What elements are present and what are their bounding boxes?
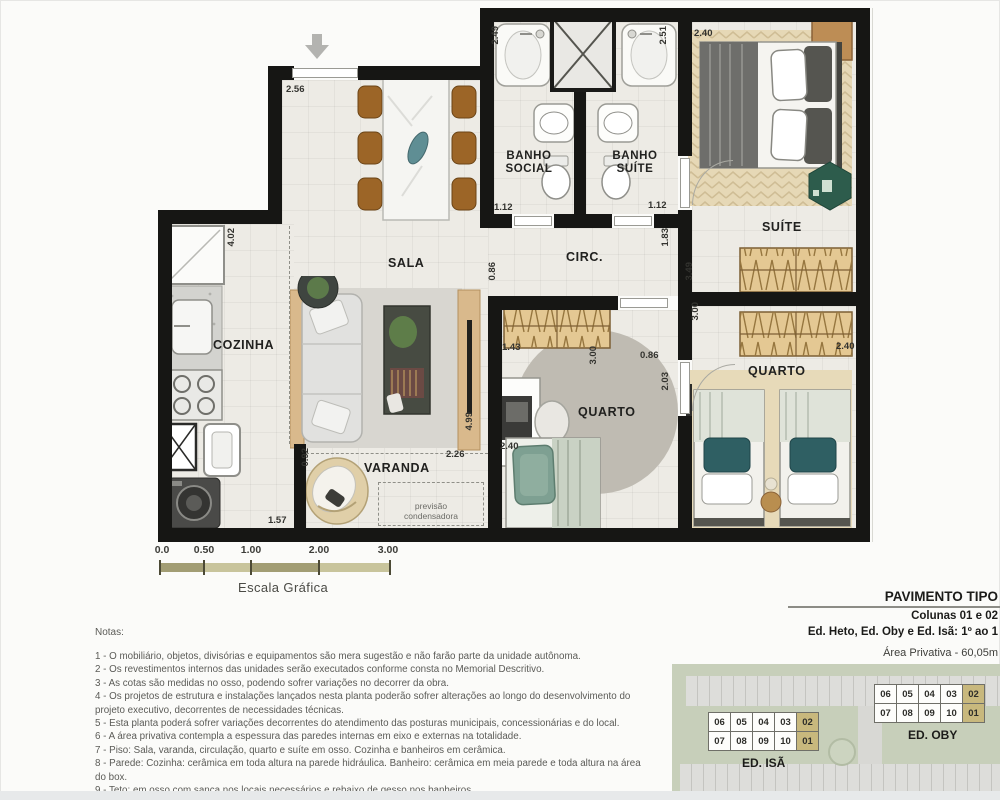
elevator-shaft: [550, 16, 616, 92]
wall: [678, 416, 692, 542]
shaft-x-icon: [554, 20, 612, 88]
unit-cell: 08: [896, 703, 919, 723]
building-label-ed-oby: ED. OBY: [908, 728, 957, 742]
wall: [268, 66, 282, 224]
unit-cell: 10: [774, 731, 797, 751]
unit-cell: 03: [940, 684, 963, 704]
suite-furniture-illustration: [684, 20, 856, 296]
scale-bar-tick: [250, 560, 252, 575]
scale-bar-segment: [319, 563, 390, 572]
note-item: 1 - O mobiliário, objetos, divisórias e …: [95, 650, 651, 663]
unit-row: 07 08 09 10 01: [874, 703, 984, 722]
wall: [488, 296, 618, 310]
dimension-label: 4.99: [464, 412, 475, 431]
wall: [554, 214, 612, 228]
scale-tick-label: 0.0: [155, 544, 170, 556]
label-banho-social: BANHO SOCIAL: [496, 150, 562, 176]
dimension-label: 3.49: [684, 262, 695, 281]
notes-title: Notas:: [95, 627, 651, 638]
page-bottom-strip: [0, 791, 1000, 800]
dimension-label: 2.03: [660, 372, 671, 391]
label-sala: SALA: [388, 256, 424, 270]
wall: [158, 528, 870, 542]
wall: [480, 8, 870, 22]
dimension-label: 2.26: [446, 449, 465, 460]
condenser-label: previsão condensadora: [390, 501, 472, 521]
unit-row: 06 05 04 03 02: [874, 684, 984, 703]
banho-suite-door: [614, 216, 652, 226]
unit-cell: 10: [940, 703, 963, 723]
wall: [480, 214, 512, 228]
dimension-label: 1.12: [648, 200, 667, 211]
wall: [678, 292, 870, 306]
wall: [358, 66, 490, 80]
wall: [574, 92, 586, 214]
unit-row: 07 08 09 10 01: [708, 731, 818, 750]
guide-line: [872, 8, 873, 542]
unit-cell-highlighted: 02: [962, 684, 985, 704]
scale-bar-tick: [203, 560, 205, 575]
roundabout: [828, 738, 856, 766]
scale-tick-label: 3.00: [378, 544, 398, 556]
dimension-label: 0.86: [640, 350, 659, 361]
scale-bar-tick: [318, 560, 320, 575]
label-quarto-meio: QUARTO: [578, 405, 636, 419]
dining-set-illustration: [352, 76, 482, 222]
unit-row: 06 05 04 03 02: [708, 712, 818, 731]
unit-cell: 07: [708, 731, 731, 751]
panel-area-line: Área Privativa - 60,05m: [883, 647, 998, 659]
building-ed-oby: 06 05 04 03 02 07 08 09 10 01: [874, 684, 984, 722]
scale-bar-tick: [159, 560, 161, 575]
unit-cell: 05: [896, 684, 919, 704]
armchair-illustration: [304, 456, 370, 526]
unit-cell: 09: [752, 731, 775, 751]
dimension-label: 1.83: [660, 228, 671, 247]
wall: [158, 210, 172, 542]
wall: [488, 296, 502, 542]
note-item: 4 - Os projetos de estrutura e instalaçõ…: [95, 690, 651, 717]
unit-cell: 04: [752, 712, 775, 732]
kitchen-appliances-illustration: [160, 222, 246, 532]
scale-bar-segment: [251, 563, 319, 572]
note-item: 5 - Esta planta poderá sofrer variações …: [95, 717, 651, 730]
scale-tick-label: 1.00: [241, 544, 261, 556]
dimension-label: 3.00: [588, 346, 599, 365]
dimension-label: 2.40: [836, 341, 855, 352]
quarto-fundo-door: [680, 362, 690, 414]
entry-door: [292, 68, 358, 78]
unit-cell: 07: [874, 703, 897, 723]
panel-subtitle: Colunas 01 e 02: [911, 610, 998, 622]
scale-tick-label: 2.00: [309, 544, 329, 556]
banho-social-door: [514, 216, 552, 226]
scale-bar-segment: [204, 563, 251, 572]
panel-buildings-line: Ed. Heto, Ed. Oby e Ed. Isã: 1º ao 1: [808, 626, 998, 638]
panel-title: PAVIMENTO TIPO: [885, 589, 998, 604]
unit-cell-highlighted: 01: [796, 731, 819, 751]
building-ed-isa: 06 05 04 03 02 07 08 09 10 01: [708, 712, 818, 750]
dimension-label: 2.56: [286, 84, 305, 95]
dimension-label: 2.40: [694, 28, 713, 39]
label-banho-suite: BANHO SUÍTE: [602, 150, 668, 176]
dimension-label: 0.86: [487, 262, 498, 281]
dimension-label: 3.00: [690, 302, 701, 321]
entry-arrow-icon: [312, 34, 322, 45]
note-item: 2 - Os revestimentos internos das unidad…: [95, 663, 651, 676]
site-key-plan: 06 05 04 03 02 07 08 09 10 01 ED. ISÃ 06…: [672, 664, 1000, 800]
back-bedroom-illustration: [686, 306, 856, 528]
notes-block: Notas: 1 - O mobiliário, objetos, divisó…: [95, 627, 651, 800]
unit-cell-highlighted: 01: [962, 703, 985, 723]
unit-cell: 05: [730, 712, 753, 732]
dimension-label: 1.57: [268, 515, 287, 526]
note-item: 6 - A área privativa contempla a espessu…: [95, 730, 651, 743]
panel-rule: [788, 606, 1000, 608]
unit-cell: 06: [874, 684, 897, 704]
note-item: 7 - Piso: Sala, varanda, circulação, qua…: [95, 744, 651, 757]
unit-cell: 03: [774, 712, 797, 732]
entry-arrow-head-icon: [305, 45, 329, 59]
scale-tick-label: 0.50: [194, 544, 214, 556]
note-item: 3 - As cotas são medidas no osso, podend…: [95, 677, 651, 690]
floorplan-page: previsão condensadora SALA COZINHA VARAN…: [0, 0, 1000, 800]
unit-cell-highlighted: 02: [796, 712, 819, 732]
building-label-ed-isa: ED. ISÃ: [742, 756, 785, 770]
label-varanda: VARANDA: [364, 461, 430, 475]
dimension-label: 0.92: [300, 448, 311, 467]
wall: [856, 8, 870, 542]
label-circulacao: CIRC.: [566, 250, 603, 264]
wall: [158, 210, 282, 224]
unit-cell: 08: [730, 731, 753, 751]
wall: [678, 8, 692, 156]
label-suite: SUÍTE: [762, 220, 802, 234]
kitchen-open-boundary: [289, 226, 290, 444]
dimension-label: 1.12: [494, 202, 513, 213]
quarto-meio-door: [620, 298, 668, 308]
label-quarto-fundo: QUARTO: [748, 364, 806, 378]
suite-door: [680, 158, 690, 208]
note-item: 8 - Parede: Cozinha: cerâmica em toda al…: [95, 757, 651, 784]
sofa-tv-illustration: [290, 276, 488, 460]
unit-cell: 06: [708, 712, 731, 732]
unit-cell: 04: [918, 684, 941, 704]
scale-bar-tick: [389, 560, 391, 575]
label-cozinha: COZINHA: [213, 338, 274, 352]
dimension-label: 4.02: [226, 228, 237, 247]
scale-bar-caption: Escala Gráfica: [238, 580, 328, 595]
dimension-label: 1.43: [502, 342, 521, 353]
unit-cell: 09: [918, 703, 941, 723]
dimension-label: 2.51: [658, 26, 669, 45]
dimension-label: 2.49: [490, 26, 501, 45]
scale-bar-segment: [160, 563, 204, 572]
wall: [678, 210, 692, 360]
dimension-label: 2.40: [500, 441, 519, 452]
